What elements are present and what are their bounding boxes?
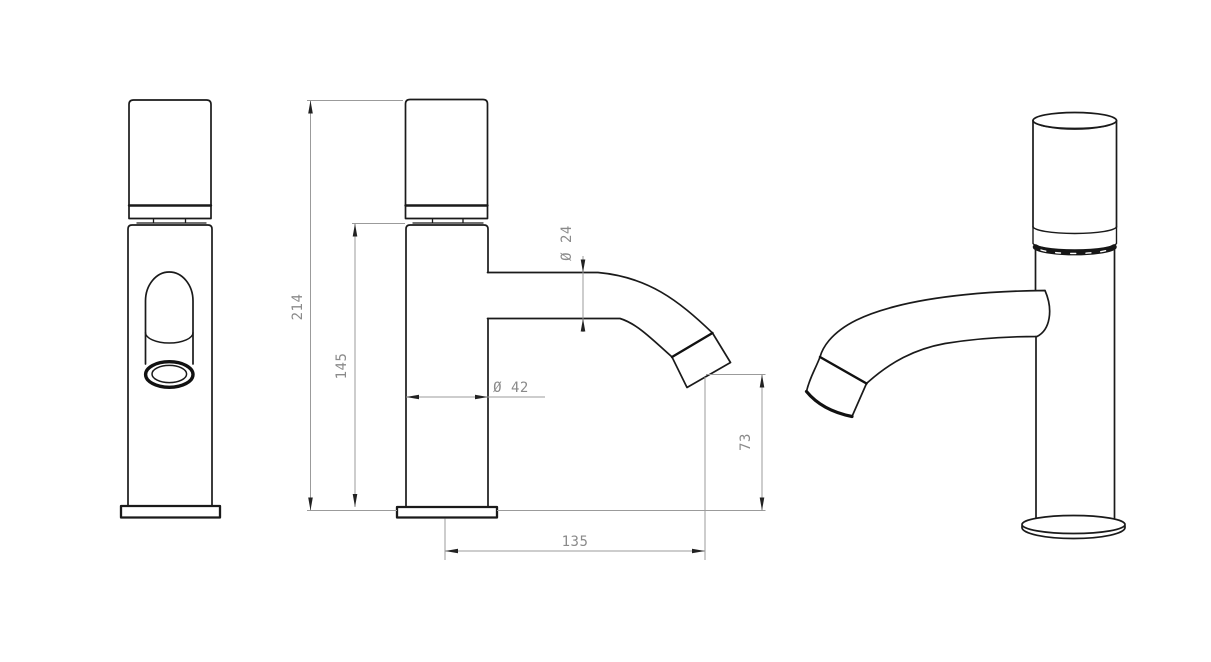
side-neck	[413, 219, 483, 223]
dim-text-outlet-height: 73	[738, 433, 754, 451]
dim-text-body-diameter: Ø 42	[493, 380, 529, 396]
front-spout-aerator-arc	[146, 333, 194, 344]
perspective-view	[807, 113, 1126, 539]
front-handle	[129, 100, 211, 219]
dimension-labels: 214 145 Ø 24 Ø 42 73 135	[290, 225, 754, 550]
front-base	[121, 506, 220, 518]
persp-base-flange	[1022, 516, 1125, 539]
arrow-214-bottom	[308, 498, 313, 511]
side-body	[406, 225, 488, 507]
technical-drawing-page: 214 145 Ø 24 Ø 42 73 135	[0, 0, 1211, 662]
arrow-73-bottom	[760, 498, 765, 511]
dim-text-body-height: 145	[334, 353, 350, 380]
arrow-d24-bottom	[581, 319, 586, 332]
dimension-arrows	[308, 101, 764, 554]
arrow-d42-left	[406, 395, 419, 400]
dim-text-overall-height: 214	[290, 294, 306, 321]
side-base	[397, 507, 497, 518]
arrow-145-bottom	[353, 494, 358, 507]
side-spout	[488, 273, 731, 388]
arrow-d42-right	[475, 395, 488, 400]
side-view	[397, 100, 731, 518]
persp-handle-top-ellipse	[1033, 113, 1117, 129]
front-outlet-inner-ring	[152, 365, 187, 382]
arrow-d24-top	[581, 260, 586, 273]
arrow-214-top	[308, 101, 313, 114]
persp-body-sides	[1036, 250, 1115, 518]
arrow-135-right	[692, 549, 705, 554]
side-handle	[406, 100, 488, 219]
faucet-technical-drawing: 214 145 Ø 24 Ø 42 73 135	[0, 0, 1211, 662]
front-neck	[137, 219, 206, 223]
persp-handle-sides	[1033, 121, 1117, 228]
arrow-73-top	[760, 375, 765, 388]
dimension-lines	[307, 101, 766, 561]
dim-text-spout-reach: 135	[562, 534, 589, 550]
persp-handle-band	[1033, 227, 1117, 251]
front-spout-tube	[146, 272, 194, 364]
persp-spout-aerator-line	[820, 357, 867, 384]
arrow-135-left	[445, 549, 458, 554]
side-spout-aerator-line	[672, 333, 713, 357]
persp-spout-tip-face	[807, 392, 853, 417]
persp-spout	[807, 291, 1050, 417]
dim-text-spout-diameter: Ø 24	[559, 225, 575, 261]
front-view	[121, 100, 220, 518]
arrow-145-top	[353, 224, 358, 237]
